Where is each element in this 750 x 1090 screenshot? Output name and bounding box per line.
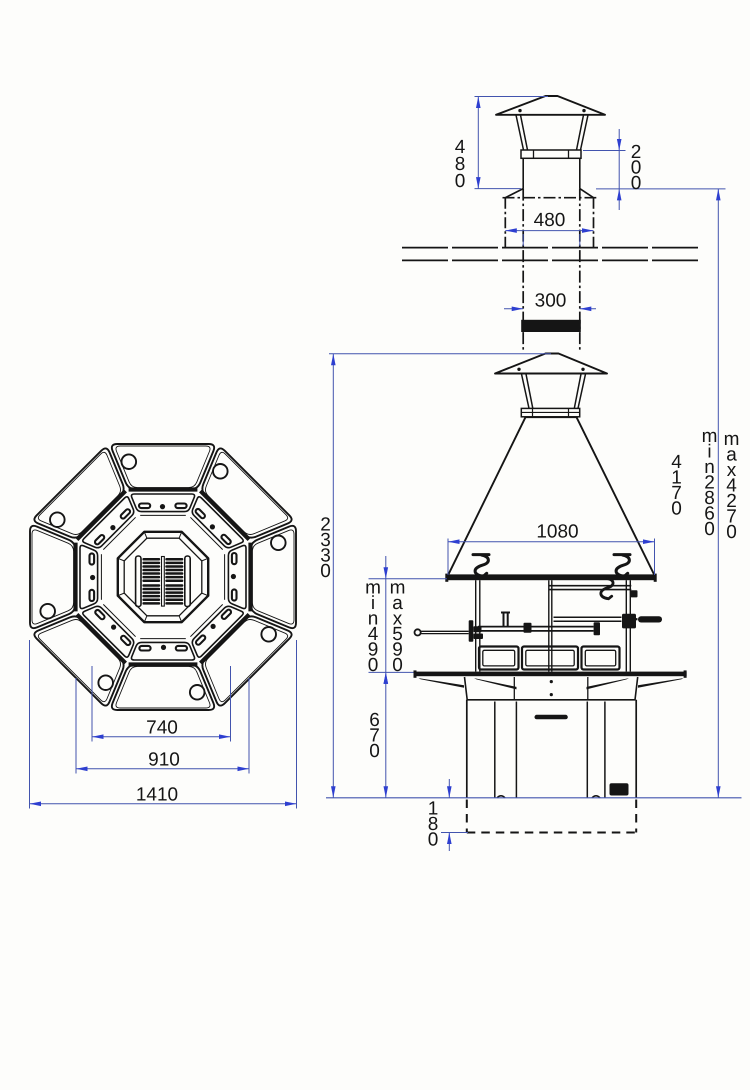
svg-text:0: 0 bbox=[369, 741, 380, 762]
svg-text:0: 0 bbox=[392, 655, 403, 676]
svg-text:0: 0 bbox=[704, 519, 715, 540]
svg-text:300: 300 bbox=[535, 291, 567, 312]
svg-text:0: 0 bbox=[368, 655, 379, 676]
svg-text:0: 0 bbox=[726, 522, 737, 543]
svg-text:0: 0 bbox=[671, 499, 682, 520]
svg-text:740: 740 bbox=[146, 718, 178, 739]
svg-text:910: 910 bbox=[148, 750, 180, 771]
svg-text:0: 0 bbox=[455, 171, 466, 192]
svg-text:0: 0 bbox=[320, 561, 331, 582]
svg-text:480: 480 bbox=[534, 210, 566, 231]
svg-text:0: 0 bbox=[631, 173, 642, 194]
svg-text:1080: 1080 bbox=[536, 522, 578, 543]
svg-text:0: 0 bbox=[428, 830, 439, 851]
svg-text:1410: 1410 bbox=[136, 785, 178, 806]
